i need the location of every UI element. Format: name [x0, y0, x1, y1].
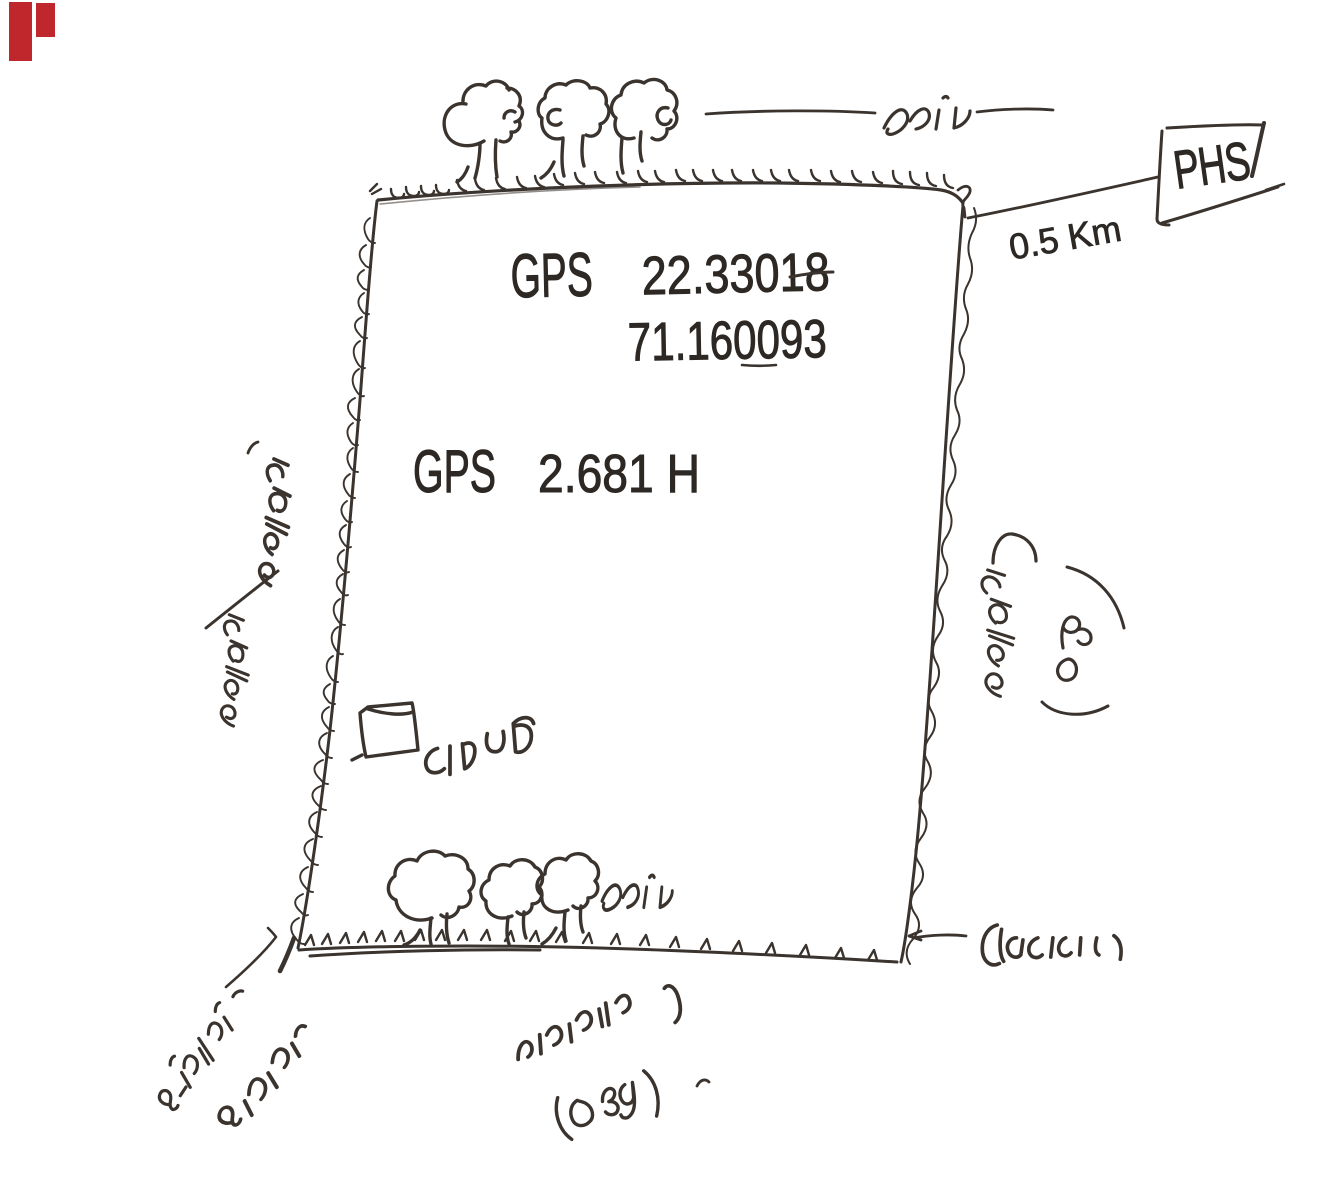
svg-text:GPS: GPS [413, 438, 496, 505]
svg-text:PHS: PHS [1170, 131, 1254, 201]
svg-text:71.160093: 71.160093 [627, 309, 827, 372]
svg-text:GPS: GPS [510, 241, 594, 312]
svg-text:0.5 Km: 0.5 Km [1006, 208, 1124, 268]
svg-text:2.681 H: 2.681 H [538, 444, 700, 504]
